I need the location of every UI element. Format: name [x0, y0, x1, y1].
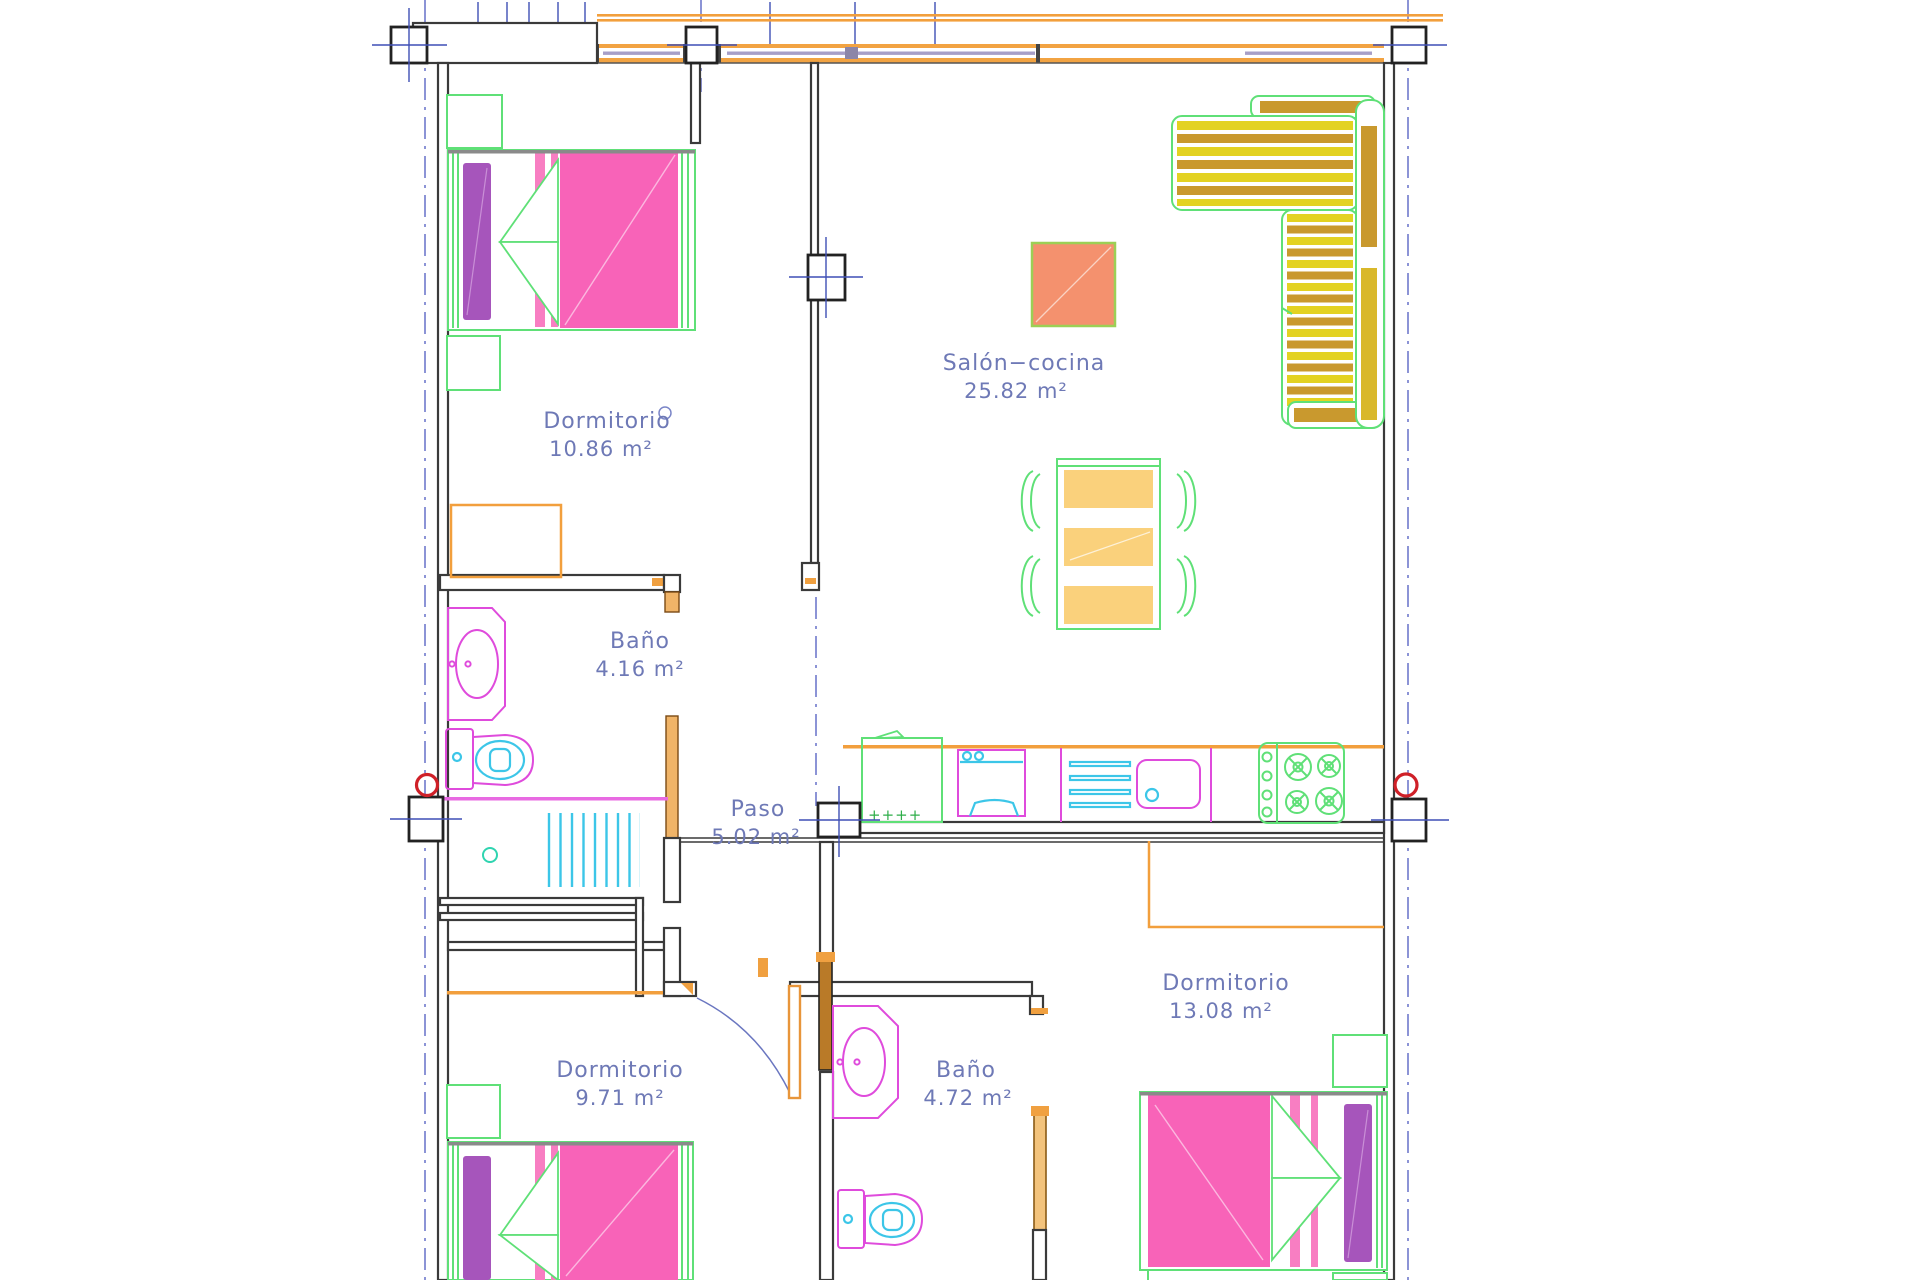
toilet [838, 1190, 922, 1248]
red-marker [1395, 774, 1417, 796]
sink-unit [1061, 748, 1211, 822]
nightstand [447, 1085, 500, 1138]
bedroom3-door [681, 958, 800, 1098]
room-label-dormitorio2-area: 13.08 m² [1169, 999, 1273, 1023]
dishwasher [958, 750, 1025, 816]
cooktop [1259, 743, 1344, 823]
chair [1022, 471, 1040, 531]
nightstand [447, 336, 500, 390]
sink-bowl [1137, 760, 1200, 808]
bedroom1 [447, 95, 695, 577]
nightstand [447, 95, 502, 148]
room-label-paso-area: 5.02 m² [711, 825, 800, 849]
window-glass [1245, 52, 1372, 55]
window-glass [727, 52, 1035, 55]
room-label-dormitorio3-name: Dormitorio [556, 1058, 683, 1083]
room-label-salon-area: 25.82 m² [964, 379, 1068, 403]
wall-divider-end [802, 563, 819, 590]
red-marker [417, 775, 438, 796]
floor-plan-drawing: ++++ [0, 0, 1920, 1280]
bath2-sliding-door-right [1034, 1112, 1046, 1230]
wall-divider-upper [811, 63, 818, 255]
nightstand-partial [1333, 1273, 1387, 1280]
chair [1177, 471, 1195, 531]
wall-wardrobe-back [448, 942, 664, 950]
chair [1177, 556, 1195, 616]
room-label-dormitorio2-name: Dormitorio [1162, 971, 1289, 996]
wall-stub-top [691, 63, 700, 143]
kitchen: ++++ [843, 731, 1384, 824]
wall-top-left [413, 23, 597, 63]
drain [483, 848, 497, 862]
room-label-dormitorio3-area: 9.71 m² [575, 1086, 664, 1110]
room-label-paso-name: Paso [731, 797, 786, 822]
toilet [446, 729, 533, 789]
bed-double [448, 1142, 693, 1280]
fridge: ++++ [862, 731, 942, 824]
window-glass [603, 52, 680, 55]
wall-divider-lower [811, 300, 818, 563]
door-jamb [665, 592, 679, 612]
bed-double [1140, 1092, 1387, 1280]
wall-bath2-right [1033, 1230, 1046, 1280]
wall-bath2-left [820, 1072, 833, 1280]
washbasin [448, 608, 505, 720]
shower-screen [440, 797, 668, 801]
bedroom3 [447, 1085, 693, 1280]
room-label-bano1-area: 4.16 m² [595, 657, 684, 681]
bath1-sliding-door [666, 716, 678, 838]
wardrobe-bedroom1 [451, 505, 561, 577]
room-label-bano2-name: Baño [936, 1058, 996, 1083]
door-stop [758, 958, 768, 977]
bedroom2 [1140, 841, 1387, 1280]
window-mullion [845, 47, 858, 59]
room-label-dormitorio1-name: Dormitorio [543, 409, 670, 434]
window-sill-outer [597, 14, 1443, 17]
coffee-table [1032, 243, 1115, 326]
nightstand [1333, 1035, 1387, 1087]
wall-bath1-right-bottom [664, 838, 680, 902]
wall-mid-vertical [636, 898, 643, 996]
burners [1285, 754, 1342, 814]
wall-paso-right [820, 842, 833, 960]
door-swing-arc [697, 998, 790, 1093]
bath2-sliding-door-left [819, 958, 832, 1070]
wall-bedroom3-top [440, 913, 643, 920]
sofa [1172, 96, 1384, 428]
dining-set [1022, 459, 1196, 629]
facade-windows [595, 14, 1443, 63]
wall-bath1-right-top [664, 575, 680, 592]
chair [1022, 556, 1040, 616]
floor-plan: ++++ [0, 0, 1920, 1280]
fridge-vent-marks: ++++ [868, 806, 922, 824]
washbasin [833, 1006, 898, 1118]
shower [483, 813, 640, 887]
room-label-bano1-name: Baño [610, 629, 670, 654]
bed-double [448, 150, 695, 330]
room-label-salon-name: Salón−cocina [943, 351, 1106, 376]
room-label-dormitorio1-area: 10.86 m² [549, 437, 653, 461]
bathroom2 [833, 1006, 922, 1248]
wardrobe-front-bedroom3 [447, 991, 663, 995]
pillow [463, 1156, 491, 1280]
wall-bath1-bottom [440, 898, 643, 905]
door-leaf [789, 986, 800, 1098]
wardrobe-bedroom2 [1149, 841, 1384, 927]
counter-edge [843, 745, 1384, 749]
room-label-bano2-area: 4.72 m² [923, 1086, 1012, 1110]
